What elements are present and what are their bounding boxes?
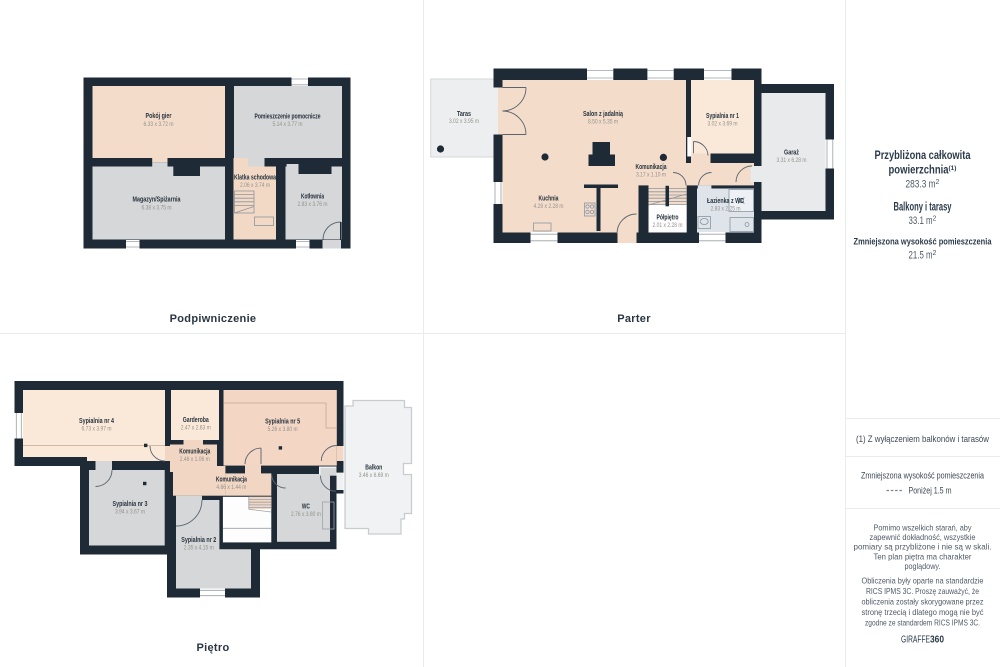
svg-text:2.06 x 3.74 m: 2.06 x 3.74 m (240, 182, 270, 189)
svg-text:poglądowy.: poglądowy. (905, 561, 941, 571)
svg-text:6.73 x 3.97 m: 6.73 x 3.97 m (82, 426, 112, 433)
svg-text:Ten plan piętra ma charakter: Ten plan piętra ma charakter (874, 551, 972, 561)
svg-text:3.17 x 1.10 m: 3.17 x 1.10 m (636, 172, 666, 179)
svg-text:6.38 x 3.75 m: 6.38 x 3.75 m (142, 204, 172, 211)
svg-text:Zmniejszona wysokość pomieszcz: Zmniejszona wysokość pomieszczenia (861, 471, 984, 481)
svg-text:283.3 m2: 283.3 m2 (906, 179, 940, 191)
svg-text:Łazienka z WC: Łazienka z WC (707, 198, 744, 205)
svg-text:pomiary są przybliżone i nie s: pomiary są przybliżone i nie są w skali. (854, 542, 992, 552)
svg-text:2.01 x 2.28 m: 2.01 x 2.28 m (653, 222, 683, 229)
svg-text:Sypialnia nr 2: Sypialnia nr 2 (181, 537, 216, 544)
svg-text:Komunikacja: Komunikacja (636, 164, 667, 171)
svg-text:Sypialnia nr 4: Sypialnia nr 4 (79, 418, 114, 425)
svg-text:Garderoba: Garderoba (183, 417, 209, 424)
svg-text:Sypialnia nr 1: Sypialnia nr 1 (706, 113, 739, 120)
svg-text:5.14 x 3.77 m: 5.14 x 3.77 m (273, 121, 303, 128)
svg-text:Sypialnia nr 5: Sypialnia nr 5 (265, 419, 300, 426)
svg-text:Salon z jadalnią: Salon z jadalnią (583, 111, 623, 118)
svg-text:3.02 x 3.69 m: 3.02 x 3.69 m (708, 121, 738, 128)
svg-text:Magazyn/Spiżarnia: Magazyn/Spiżarnia (133, 197, 181, 204)
svg-text:Kuchnia: Kuchnia (539, 196, 559, 203)
svg-text:Pokój gier: Pokój gier (146, 113, 172, 120)
svg-text:4.66 x 1.44 m: 4.66 x 1.44 m (216, 484, 246, 491)
svg-text:2.76 x 3.80 m: 2.76 x 3.80 m (291, 511, 321, 518)
svg-text:21.5 m2: 21.5 m2 (909, 250, 937, 262)
svg-text:GIRAFFE360: GIRAFFE360 (901, 635, 944, 646)
svg-text:6.33 x 3.72 m: 6.33 x 3.72 m (144, 121, 174, 128)
svg-text:Balkony i tarasy: Balkony i tarasy (894, 202, 952, 214)
svg-text:33.1 m2: 33.1 m2 (909, 215, 937, 227)
svg-text:(1) Z wyłączeniem balkonów i t: (1) Z wyłączeniem balkonów i tarasów (856, 434, 989, 444)
svg-text:Klatka schodowa: Klatka schodowa (234, 174, 276, 181)
svg-text:obliczenia zostały skorygowane: obliczenia zostały skorygowane przez (862, 597, 984, 607)
svg-text:4.29 x 2.28 m: 4.29 x 2.28 m (534, 203, 564, 210)
svg-text:Garaż: Garaż (784, 150, 799, 157)
svg-text:2.47 x 2.63 m: 2.47 x 2.63 m (181, 425, 211, 432)
svg-text:Pomieszczenie pomocnicze: Pomieszczenie pomocnicze (255, 114, 321, 121)
svg-text:Komunikacja: Komunikacja (179, 449, 210, 456)
svg-text:Zmniejszona wysokość pomieszcz: Zmniejszona wysokość pomieszczenia (854, 237, 993, 248)
svg-text:Obliczenia były oparte na stan: Obliczenia były oparte na standardzie (862, 576, 984, 586)
svg-text:WC: WC (302, 504, 310, 511)
svg-text:powierzchnia(1): powierzchnia(1) (889, 165, 957, 177)
svg-text:Kotłownia: Kotłownia (301, 193, 324, 200)
svg-text:Taras: Taras (457, 111, 471, 118)
svg-text:2.83 x 3.76 m: 2.83 x 3.76 m (298, 201, 328, 208)
svg-text:zapewnić dokładność, wszystkie: zapewnić dokładność, wszystkie (870, 532, 976, 542)
svg-text:2.35 x 4.15 m: 2.35 x 4.15 m (184, 544, 214, 551)
svg-text:8.50 x 5.35 m: 8.50 x 5.35 m (588, 119, 618, 126)
svg-text:3.31 x 6.28 m: 3.31 x 6.28 m (777, 157, 807, 164)
svg-text:zgodne ze standardem RICS IPMS: zgodne ze standardem RICS IPMS 3C. (865, 618, 980, 628)
svg-text:2.46 x 1.06 m: 2.46 x 1.06 m (180, 456, 210, 463)
svg-text:Pomimo wszelkich starań, aby: Pomimo wszelkich starań, aby (874, 523, 973, 533)
svg-text:Poniżej 1.5 m: Poniżej 1.5 m (909, 486, 952, 496)
svg-text:Sypialnia nr 3: Sypialnia nr 3 (113, 501, 148, 508)
svg-text:Przybliżona całkowita: Przybliżona całkowita (875, 150, 971, 162)
svg-text:3.94 x 3.67 m: 3.94 x 3.67 m (115, 509, 145, 516)
svg-text:Półpiętro: Półpiętro (657, 215, 679, 222)
svg-text:stronę trzecią i dlatego mogą: stronę trzecią i dlatego mogą nie być (862, 607, 985, 617)
svg-text:2.83 x 2.25 m: 2.83 x 2.25 m (711, 206, 741, 213)
svg-text:Balkon: Balkon (365, 465, 382, 472)
svg-text:3.46 x 6.69 m: 3.46 x 6.69 m (359, 472, 389, 479)
svg-text:3.02 x 3.95 m: 3.02 x 3.95 m (449, 118, 479, 125)
svg-text:5.26 x 3.80 m: 5.26 x 3.80 m (268, 426, 298, 433)
svg-text:RICS IPMS 3C. Proszę zauważyć,: RICS IPMS 3C. Proszę zauważyć, że (866, 586, 979, 596)
svg-text:Komunikacja: Komunikacja (216, 477, 247, 484)
